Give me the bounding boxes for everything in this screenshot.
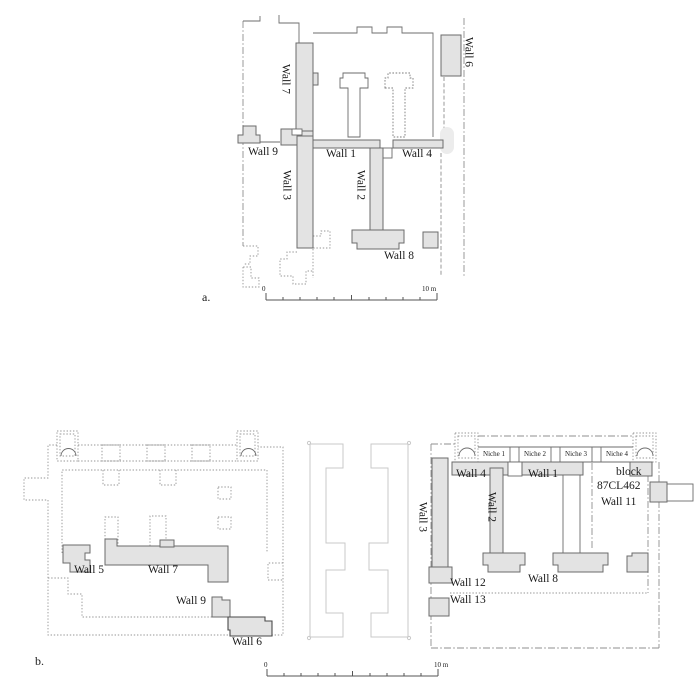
- pillar-shaft: [563, 475, 580, 553]
- wall-9-label: Wall 9: [248, 146, 278, 158]
- niche-2-label: Niche 2: [519, 450, 551, 458]
- wall-12-shape: [429, 567, 452, 583]
- tower-arc: [637, 448, 653, 456]
- wall-3b-shape: [432, 458, 448, 567]
- wall-4-label: Wall 4: [402, 148, 432, 160]
- wall-8b-label: Wall 8: [528, 573, 558, 585]
- niche-1-label: Niche 1: [478, 450, 510, 458]
- wall-9b-label: Wall 9: [176, 595, 206, 607]
- wall-1b-label: Wall 1: [528, 468, 558, 480]
- wall-7b-label: Wall 7: [148, 564, 178, 576]
- wall-2-label: Wall 2: [354, 170, 366, 200]
- wall-6-label: Wall 6: [462, 37, 474, 67]
- plan-b-middle-drawing: [307, 441, 410, 639]
- pillar-dotted: [385, 73, 413, 137]
- plans-drawing: [0, 0, 700, 697]
- wall-8-label: Wall 8: [384, 250, 414, 262]
- wall-3-label: Wall 3: [280, 170, 292, 200]
- wall-3b-label: Wall 3: [416, 502, 428, 532]
- niche-4-label: Niche 4: [601, 450, 633, 458]
- scale-a-zero: 0: [262, 285, 266, 293]
- wall-2b-label: Wall 2: [485, 492, 497, 522]
- wall-9b-shape: [212, 597, 230, 617]
- wall-4-shape: [393, 140, 443, 148]
- wall-6b-shape: [228, 617, 272, 636]
- wall-4b-label: Wall 4: [456, 468, 486, 480]
- wall-8-shape: [352, 230, 404, 249]
- figure-canvas: Wall 7 Wall 6 Wall 9 Wall 1 Wall 4 Wall …: [0, 0, 700, 697]
- block-label: block: [616, 466, 642, 478]
- block-id-label: 87CL462: [597, 480, 640, 492]
- niche-3-label: Niche 3: [560, 450, 592, 458]
- wall-13-shape: [429, 598, 449, 616]
- ghost-pillar-left: [310, 444, 345, 637]
- wall-1-label: Wall 1: [326, 148, 356, 160]
- block-87cl462-shape: [650, 482, 667, 502]
- pillar-solid: [340, 73, 368, 137]
- scale-b-zero: 0: [264, 661, 268, 669]
- tower-arc: [459, 448, 475, 456]
- wall-5-label: Wall 5: [74, 564, 104, 576]
- scale-bar-b: [267, 669, 438, 676]
- plan-b-left-drawing: [24, 431, 283, 636]
- scale-bar-a: [266, 293, 437, 300]
- wall-7-shape: [296, 43, 313, 131]
- tower-arc: [61, 449, 76, 456]
- scale-b-ten: 10 m: [434, 661, 448, 669]
- wall-7-label: Wall 7: [279, 64, 291, 94]
- wall-6-shape: [441, 35, 461, 76]
- wall-8b-shape: [553, 553, 608, 572]
- panel-b-label: b.: [35, 654, 44, 669]
- wall-12-label: Wall 12: [450, 577, 486, 589]
- wall-1-shape: [313, 140, 380, 148]
- wall-2-shape: [370, 148, 383, 230]
- ghost-pillar-right: [369, 444, 408, 637]
- scale-a-ten: 10 m: [422, 285, 436, 293]
- wall-11-label: Wall 11: [601, 496, 636, 508]
- wall-6b-label: Wall 6: [232, 636, 262, 648]
- wall-9-shape: [238, 126, 260, 143]
- panel-a-label: a.: [202, 290, 210, 305]
- wall-3-shape: [297, 136, 313, 248]
- tower-arc: [241, 449, 256, 456]
- wall-13-label: Wall 13: [450, 594, 486, 606]
